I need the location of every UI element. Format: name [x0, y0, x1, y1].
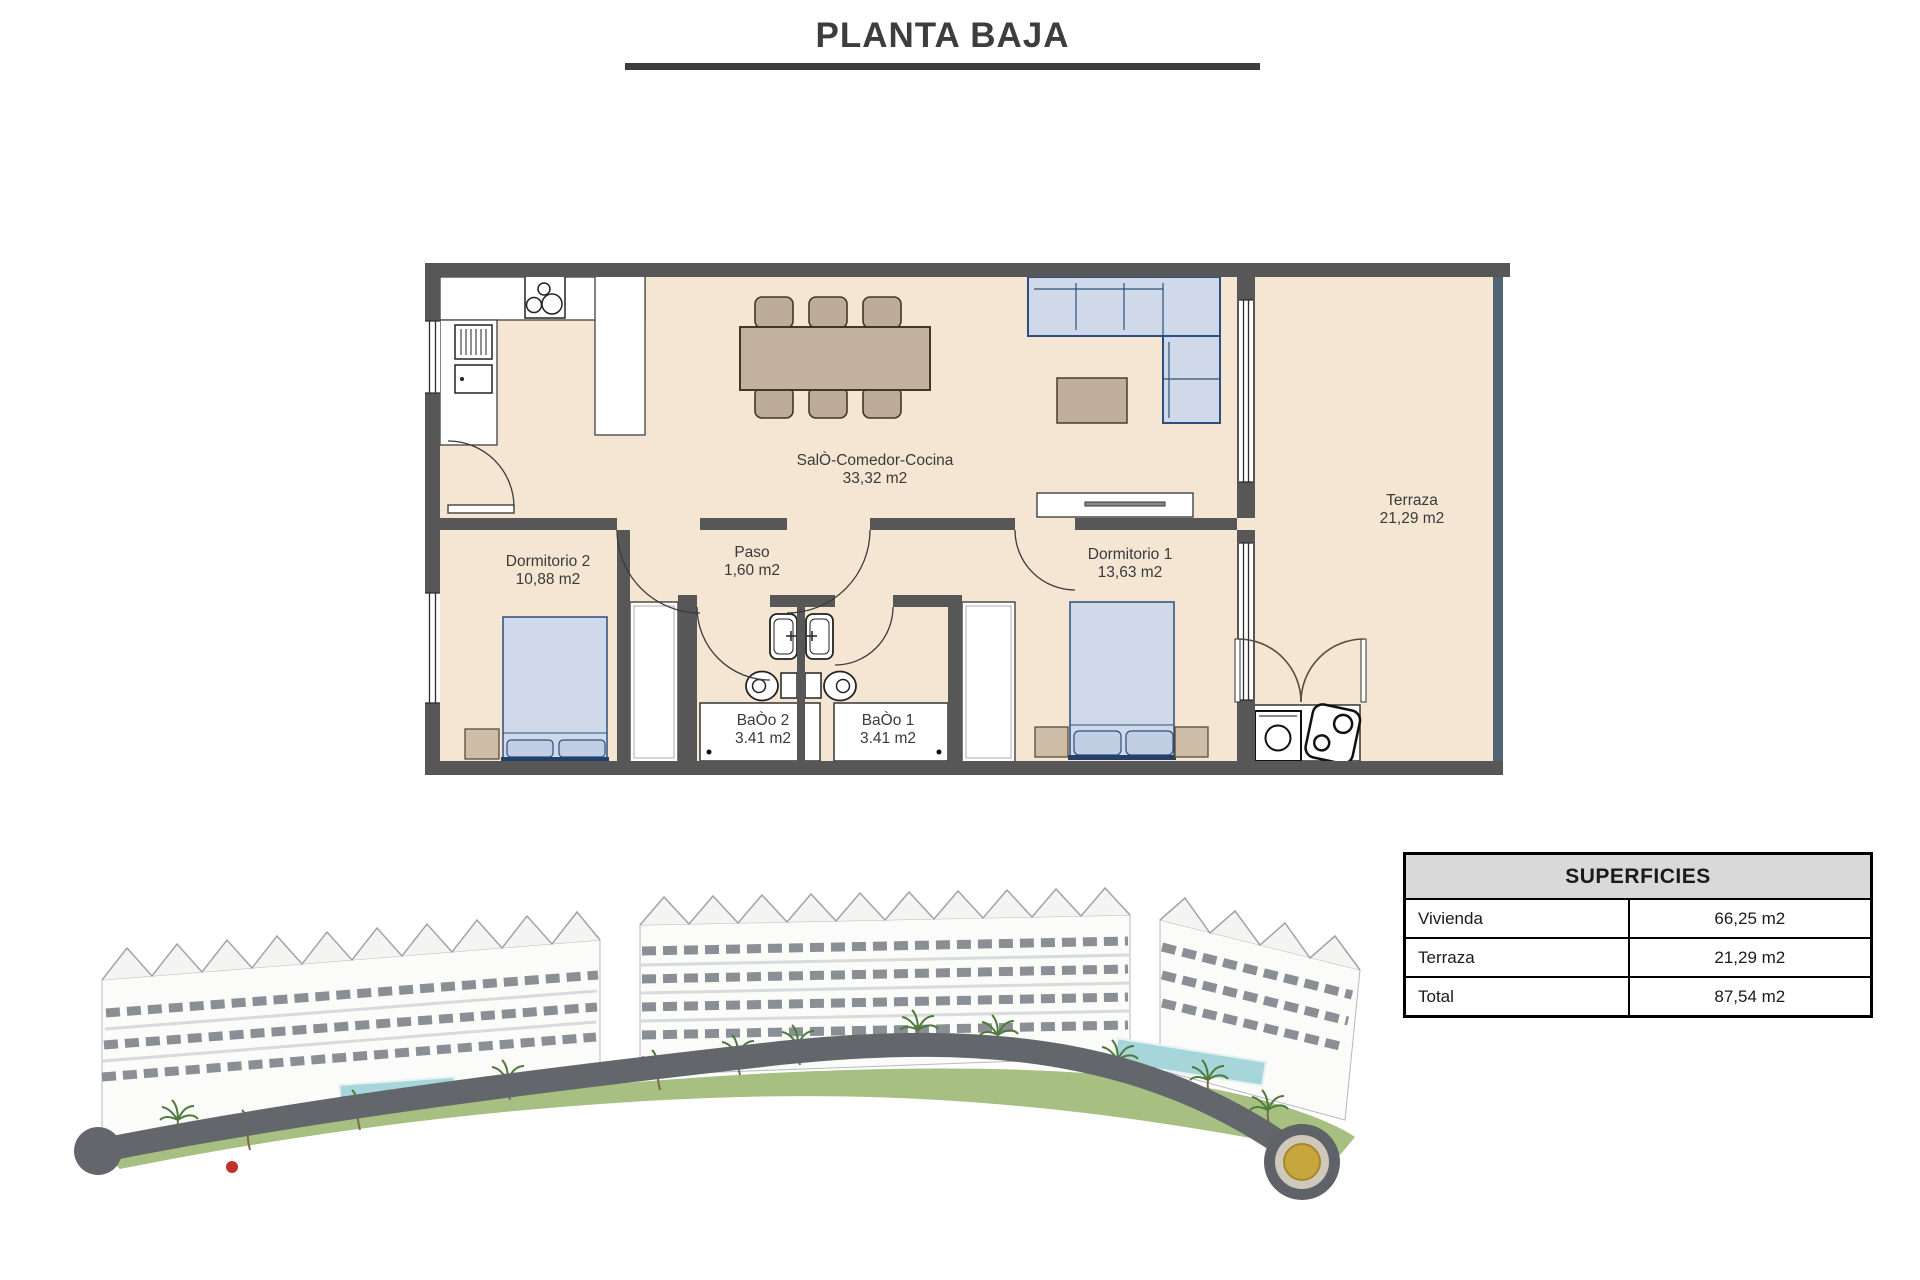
- toilet-icon: [805, 672, 856, 701]
- page-title: PLANTA BAJA: [625, 16, 1260, 56]
- washing-machine-icon: [1255, 711, 1301, 761]
- window-icon: [1239, 300, 1253, 482]
- utility-closet: [1238, 703, 1362, 766]
- room-label-salon: SalÒ-Comedor-Cocina 33,32 m2: [790, 452, 960, 488]
- nightstand: [1035, 727, 1068, 757]
- nightstand: [465, 729, 499, 759]
- bed-dormitorio2: [501, 617, 609, 762]
- window-icon: [425, 321, 440, 393]
- room-label-terraza: Terraza 21,29 m2: [1342, 492, 1482, 528]
- stove-icon: [525, 276, 565, 318]
- room-label-paso: Paso 1,60 m2: [692, 544, 812, 580]
- toilet-icon: [746, 672, 797, 701]
- nightstand: [1175, 727, 1208, 757]
- dining-set: [740, 297, 930, 418]
- superficies-title: SUPERFICIES: [1405, 854, 1872, 900]
- tv-unit: [1037, 493, 1193, 517]
- table-row: Total 87,54 m2: [1405, 977, 1872, 1017]
- room-label-bano2: BaÒo 2 3.41 m2: [703, 712, 823, 748]
- window-icon: [1239, 543, 1253, 700]
- room-label-dormitorio2: Dormitorio 2 10,88 m2: [468, 553, 628, 589]
- fridge-icon: [455, 325, 492, 393]
- sink-icon: [770, 614, 797, 659]
- bed-dormitorio1: [1068, 602, 1176, 760]
- row-value: 21,29 m2: [1629, 938, 1872, 977]
- row-label: Vivienda: [1405, 899, 1629, 938]
- header: PLANTA BAJA: [625, 16, 1260, 70]
- room-label-dormitorio1: Dormitorio 1 13,63 m2: [1050, 546, 1210, 582]
- building-render: [40, 885, 1370, 1215]
- dining-table: [740, 327, 930, 390]
- boiler-icon: [1304, 703, 1362, 766]
- row-value: 66,25 m2: [1629, 899, 1872, 938]
- terrace-railing: [1493, 277, 1503, 761]
- wardrobe-dormitorio1: [962, 602, 1015, 762]
- title-underline: [625, 63, 1260, 70]
- row-label: Terraza: [1405, 938, 1629, 977]
- wardrobe-dormitorio2: [630, 602, 678, 762]
- superficies-table: SUPERFICIES Vivienda 66,25 m2 Terraza 21…: [1403, 852, 1873, 1018]
- table-row: Vivienda 66,25 m2: [1405, 899, 1872, 938]
- table-header-row: SUPERFICIES: [1405, 854, 1872, 900]
- row-value: 87,54 m2: [1629, 977, 1872, 1017]
- roundabout: [1264, 1124, 1340, 1200]
- floor-plan: SalÒ-Comedor-Cocina 33,32 m2 Terraza 21,…: [425, 263, 1510, 775]
- coffee-table: [1057, 378, 1127, 423]
- red-marker: [226, 1161, 238, 1173]
- sink-icon: [806, 614, 833, 659]
- room-label-bano1: BaÒo 1 3.41 m2: [828, 712, 948, 748]
- page: PLANTA BAJA: [0, 0, 1920, 1280]
- table-row: Terraza 21,29 m2: [1405, 938, 1872, 977]
- window-icon: [425, 593, 440, 703]
- row-label: Total: [1405, 977, 1629, 1017]
